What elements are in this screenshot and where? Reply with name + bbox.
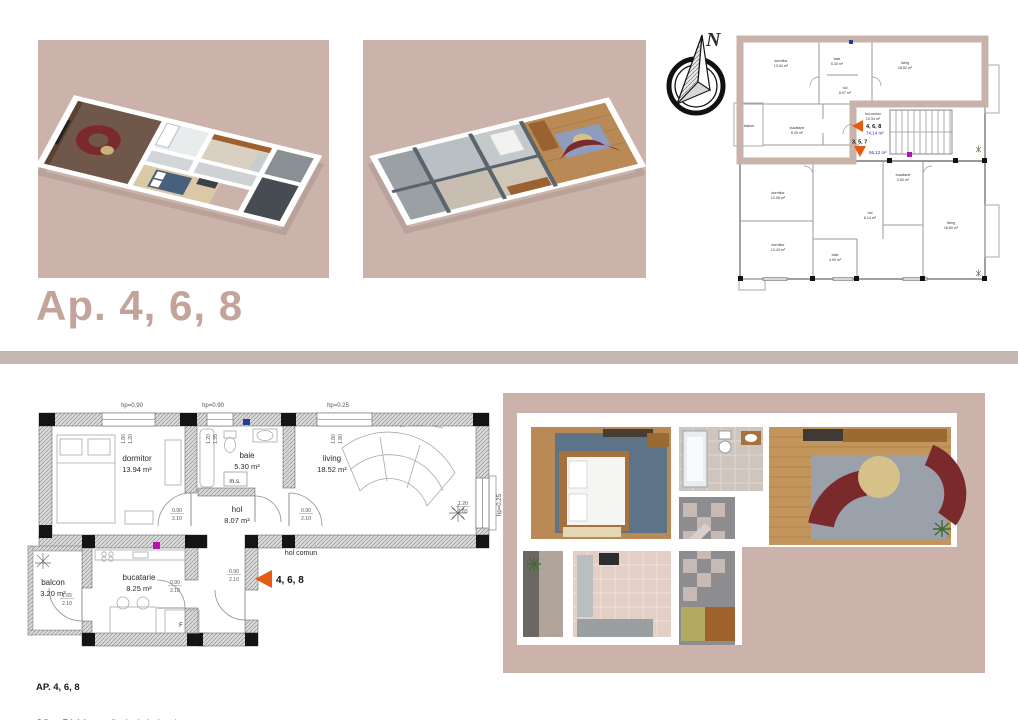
- fridge-label: F: [179, 623, 183, 629]
- door-dimensions: 0.90 2.10 0.90 2.10 0.90 2.10 0.90 2.10 …: [60, 501, 470, 607]
- floor-plan-drawing: dormitor 13.94 m² baie 5.30 m² living 18…: [25, 393, 510, 663]
- building-plan-drawing: 4, 6, 8 74,14 m² 3, 5, 7 66,12 m² dormit…: [733, 25, 1008, 295]
- svg-text:12.08 m²: 12.08 m²: [771, 196, 786, 200]
- svg-text:balcon: balcon: [744, 124, 755, 128]
- svg-text:2.10: 2.10: [62, 601, 72, 607]
- svg-text:hol: hol: [843, 86, 848, 90]
- svg-text:1.80: 1.80: [338, 434, 344, 444]
- svg-text:0.90: 0.90: [170, 580, 180, 586]
- room-label-dormitor: dormitor: [122, 454, 152, 463]
- render-3d-perspective-1-drawing: [38, 40, 329, 278]
- render-balcony: [523, 551, 563, 637]
- bath-utility-marker-navy: [243, 419, 250, 425]
- svg-text:baie: baie: [832, 253, 839, 257]
- svg-text:2.10: 2.10: [229, 577, 239, 583]
- svg-text:dormitor: dormitor: [774, 59, 788, 63]
- svg-text:living: living: [947, 221, 955, 225]
- svg-text:1.65: 1.65: [458, 509, 468, 515]
- unit-marker-area: 74,14 m²: [866, 131, 884, 136]
- svg-text:hp=0.90: hp=0.90: [202, 403, 225, 409]
- render-kitchen: [573, 551, 671, 637]
- summary-title: AP. 4, 6, 8: [36, 682, 178, 694]
- svg-text:8.07 m²: 8.07 m²: [839, 91, 852, 95]
- svg-text:0.90: 0.90: [172, 508, 182, 514]
- svg-text:4.00 m²: 4.00 m²: [829, 258, 842, 262]
- render-3d-perspective-2: [363, 40, 646, 278]
- plan-columns: [39, 413, 489, 646]
- svg-text:8.07 m²: 8.07 m²: [224, 516, 250, 525]
- svg-text:dormitor: dormitor: [771, 191, 785, 195]
- svg-text:18.52 m²: 18.52 m²: [317, 465, 347, 474]
- svg-text:hp=0.90: hp=0.90: [121, 403, 144, 409]
- svg-text:18.52 m²: 18.52 m²: [898, 66, 913, 70]
- svg-text:1.35: 1.35: [213, 434, 219, 444]
- svg-text:10,34 m²: 10,34 m²: [866, 117, 881, 121]
- page-title: Ap. 4, 6, 8: [36, 282, 243, 330]
- room-label-living: living: [323, 454, 341, 463]
- svg-text:2.10: 2.10: [301, 516, 311, 522]
- svg-text:1.20: 1.20: [128, 434, 134, 444]
- plan-walls: [39, 413, 489, 646]
- kitchen-utility-marker-magenta: [153, 542, 160, 549]
- svg-text:1.20: 1.20: [206, 434, 212, 444]
- window-dimensions: 1.80 1.20 1.20 1.35 1.80 1.80: [121, 434, 344, 444]
- compass-rose-icon: N: [656, 22, 736, 130]
- svg-text:13.94 m²: 13.94 m²: [774, 64, 789, 68]
- washing-machine-label: m.s.: [229, 479, 241, 485]
- svg-text:hp=0.25: hp=0.25: [327, 403, 350, 409]
- svg-text:living: living: [901, 61, 909, 65]
- svg-text:8.25 m²: 8.25 m²: [126, 584, 152, 593]
- unit-marker-label: 4, 6, 8: [866, 124, 881, 130]
- render-living: [769, 427, 955, 545]
- render-bedroom: [531, 427, 671, 539]
- render-3d-perspective-2-drawing: [363, 40, 646, 278]
- summary-block: AP. 4, 6, 8 SC = 74,14 m.p. (inclusiv ba…: [36, 658, 178, 720]
- compass-drawing: N: [656, 22, 736, 130]
- svg-text:baie: baie: [834, 57, 841, 61]
- svg-text:1.80: 1.80: [121, 434, 127, 444]
- building-plan: 4, 6, 8 74,14 m² 3, 5, 7 66,12 m² dormit…: [733, 25, 1008, 295]
- svg-text:5.30 m²: 5.30 m²: [831, 62, 844, 66]
- svg-text:2.10: 2.10: [170, 588, 180, 594]
- floor-plan-2d: dormitor 13.94 m² baie 5.30 m² living 18…: [25, 393, 510, 663]
- utility-marker-magenta: [907, 152, 912, 157]
- room-label-baie: baie: [239, 451, 255, 460]
- svg-text:hol: hol: [868, 211, 873, 215]
- render-3d-top-view-drawing: [503, 393, 985, 673]
- render-3d-top-view: [503, 393, 985, 673]
- svg-text:1.20: 1.20: [458, 501, 468, 507]
- svg-text:8.14 m²: 8.14 m²: [864, 216, 877, 220]
- svg-text:0.90: 0.90: [301, 508, 311, 514]
- render-bathroom: [679, 427, 763, 493]
- utility-marker-navy: [849, 40, 853, 44]
- svg-text:2.10: 2.10: [172, 516, 182, 522]
- adjacent-unit-marker-label: 3, 5, 7: [852, 140, 867, 146]
- room-label-bucatarie: bucatarie: [123, 573, 156, 582]
- svg-text:13.94 m²: 13.94 m²: [122, 465, 152, 474]
- svg-text:hol comun: hol comun: [865, 112, 882, 116]
- entrance-units-label: 4, 6, 8: [276, 575, 304, 586]
- svg-text:bucatarie: bucatarie: [790, 126, 805, 130]
- common-hall-label: hol comun: [285, 550, 317, 557]
- compass-north-label: N: [705, 29, 722, 51]
- room-label-balcon: balcon: [41, 578, 65, 587]
- svg-text:9.50 m²: 9.50 m²: [897, 178, 910, 182]
- section-divider: [0, 351, 1018, 364]
- svg-text:8.25 m²: 8.25 m²: [791, 131, 804, 135]
- svg-text:bucatarie: bucatarie: [896, 173, 911, 177]
- svg-text:1.65: 1.65: [62, 593, 72, 599]
- svg-text:dormitor: dormitor: [771, 243, 785, 247]
- furniture-outlines: [57, 425, 455, 633]
- svg-text:0.90: 0.90: [229, 569, 239, 575]
- svg-text:5.30 m²: 5.30 m²: [234, 462, 260, 471]
- svg-text:18.60 m²: 18.60 m²: [944, 226, 959, 230]
- render-hall: [679, 497, 735, 645]
- adjacent-unit-marker-area: 66,12 m²: [869, 150, 887, 155]
- svg-text:13.43 m²: 13.43 m²: [771, 248, 786, 252]
- render-3d-perspective-1: [38, 40, 329, 278]
- svg-text:1.80: 1.80: [331, 434, 337, 444]
- room-label-hol: hol: [232, 505, 243, 514]
- plan-sheet: N: [0, 0, 1018, 720]
